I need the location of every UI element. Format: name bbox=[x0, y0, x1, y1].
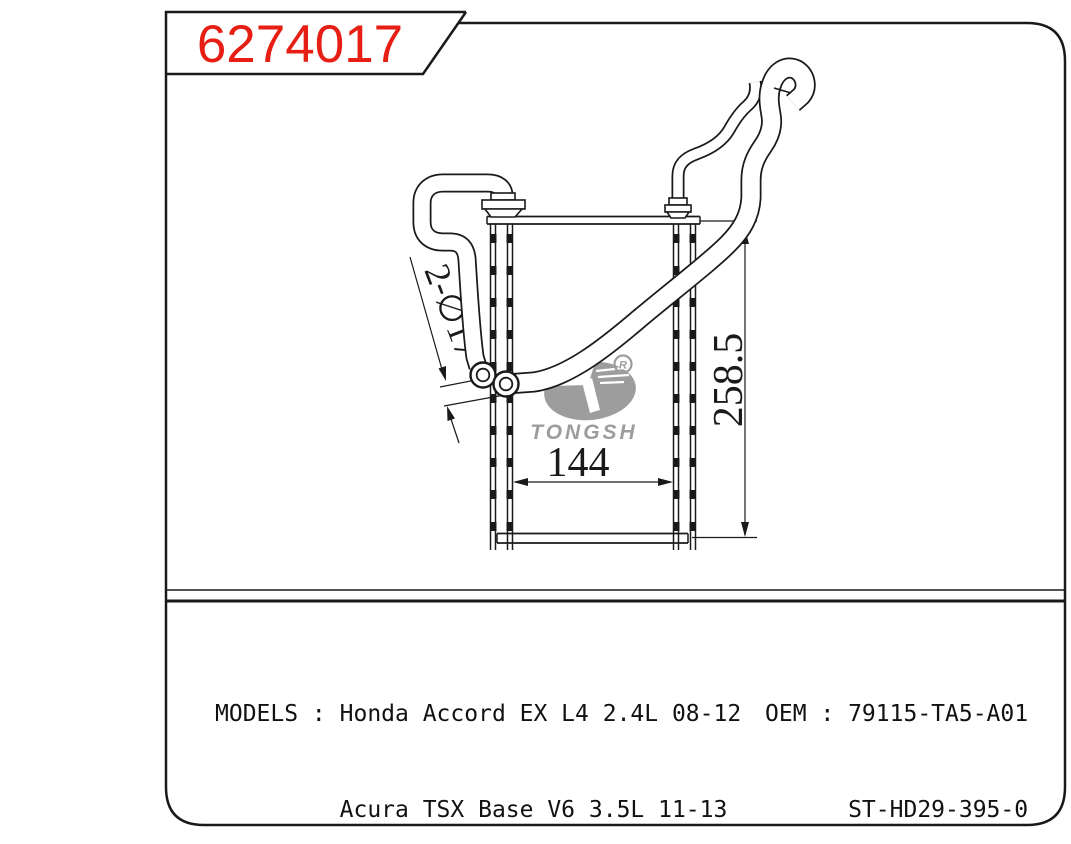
tank-fittings bbox=[482, 193, 691, 218]
registered-letter: R bbox=[619, 360, 627, 372]
spec-oem: OEM : 79115-TA5-A01 bbox=[765, 698, 1028, 730]
spec-column-right: OEM : 79115-TA5-A01 ST-HD29-395-0 DPI : … bbox=[765, 634, 1028, 844]
outlet-hose bbox=[506, 68, 805, 384]
spec-models-line2: Acura TSX Base V6 3.5L 11-13 bbox=[215, 794, 741, 826]
fitting-right bbox=[665, 198, 691, 218]
spec-oem-line2: ST-HD29-395-0 bbox=[765, 794, 1028, 826]
leader-line-b bbox=[451, 419, 459, 443]
spec-models-line: MODELS : Honda Accord EX L4 2.4L 08-12 bbox=[215, 698, 741, 730]
drawing-sheet: 144 258.5 2-∅17 R TONGSH bbox=[0, 0, 1071, 844]
dim-width-label: 144 bbox=[547, 440, 610, 486]
core-top-plate bbox=[487, 217, 700, 225]
logo-wordmark: TONGSH bbox=[530, 421, 637, 444]
core-bottom-plate bbox=[497, 534, 688, 544]
fitting-left bbox=[482, 193, 525, 217]
dim-height-label: 258.5 bbox=[706, 333, 752, 428]
spec-column-left: MODELS : Honda Accord EX L4 2.4L 08-12 A… bbox=[215, 634, 741, 844]
part-number: 6274017 bbox=[180, 14, 420, 75]
